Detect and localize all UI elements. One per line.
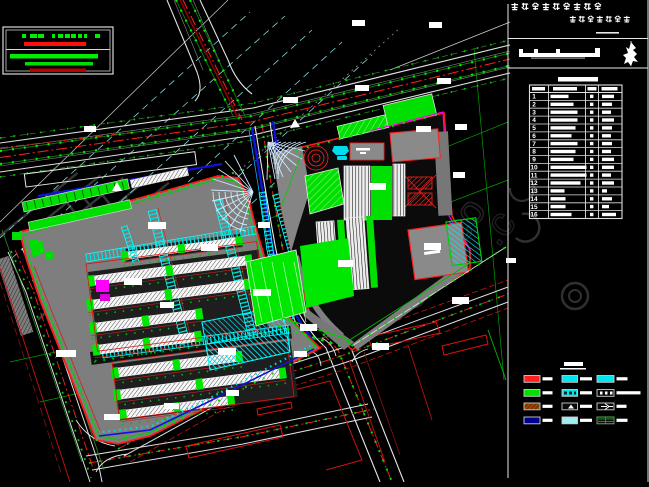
svg-text:12: 12 [530,180,538,187]
svg-text:13: 13 [530,188,538,195]
svg-text:8: 8 [532,149,536,156]
svg-text:7: 7 [532,141,536,148]
svg-text:6: 6 [532,133,536,140]
svg-text:5: 5 [532,125,536,132]
svg-text:4: 4 [532,117,536,124]
svg-text:3: 3 [532,109,536,116]
svg-text:9: 9 [532,157,536,164]
svg-text:15: 15 [530,204,538,211]
svg-text:1: 1 [532,94,536,101]
svg-text:2: 2 [532,102,536,109]
svg-text:16: 16 [530,212,538,219]
svg-text:14: 14 [530,196,538,203]
svg-text:11: 11 [531,172,538,179]
svg-text:10: 10 [530,164,538,171]
